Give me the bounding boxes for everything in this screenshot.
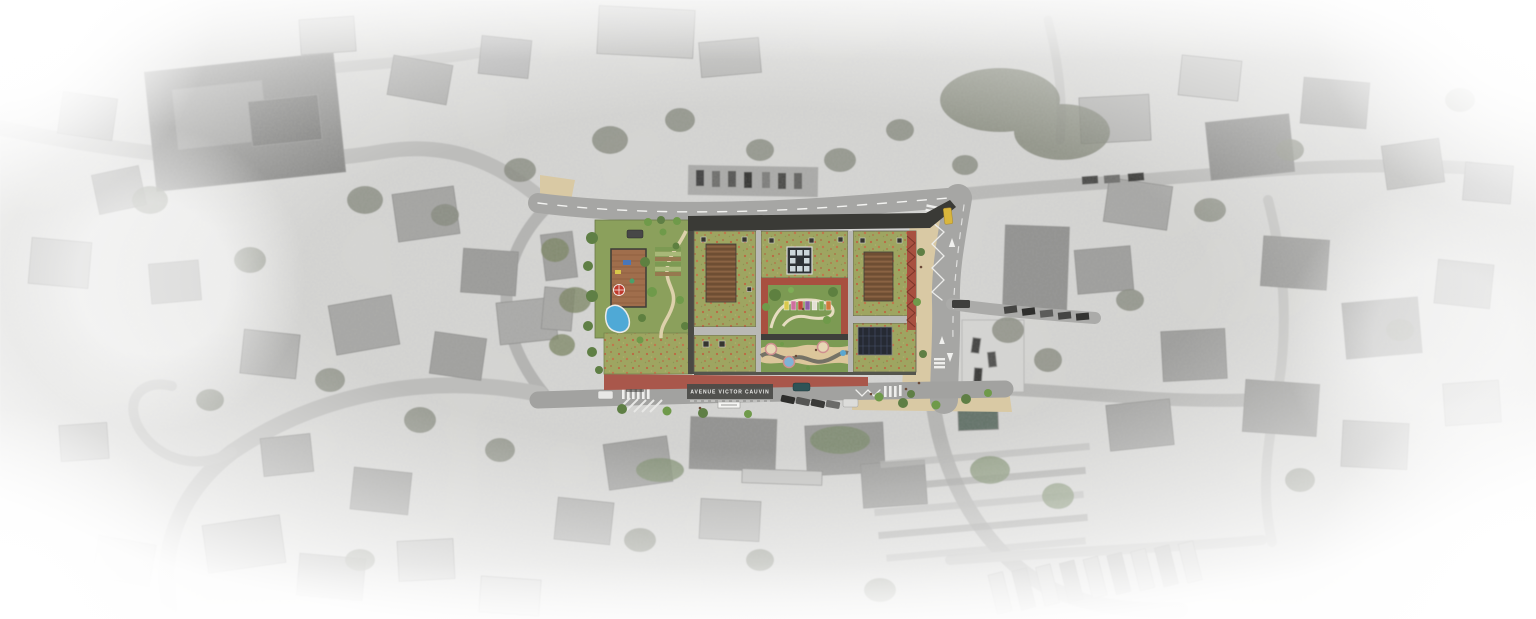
play-equipment xyxy=(615,270,621,274)
playground-courtyard xyxy=(761,340,848,372)
flower-meadow-lawn xyxy=(604,333,692,374)
crosswalk-east-road xyxy=(934,358,945,368)
parasol xyxy=(614,285,625,296)
building-complex xyxy=(688,200,956,375)
street-name-label: AVENUE VICTOR CAUVIN xyxy=(690,390,769,396)
play-circle xyxy=(818,342,829,353)
teal-car xyxy=(793,383,810,391)
dimension-box xyxy=(718,402,740,408)
west-facade-edge xyxy=(688,230,694,374)
skylight-grid xyxy=(787,247,812,274)
aerial-masterplan-render: AVENUE VICTOR CAUVIN xyxy=(0,0,1536,619)
white-car xyxy=(598,391,613,399)
courtyard-garden xyxy=(761,278,848,334)
small-street-label xyxy=(626,389,644,392)
green-roof-southwest xyxy=(694,335,756,372)
solar-panels xyxy=(858,327,892,355)
play-equipment xyxy=(630,279,635,284)
parked-car xyxy=(627,230,643,238)
dark-car xyxy=(952,300,970,308)
flower-beds xyxy=(784,301,831,310)
timber-pergola-east xyxy=(864,252,893,301)
play-equipment xyxy=(623,260,631,265)
east-awnings xyxy=(907,231,916,330)
west-garden xyxy=(595,220,695,374)
south-facade-edge xyxy=(694,372,916,375)
play-circle xyxy=(766,344,777,355)
small-pool-dot xyxy=(840,350,846,356)
white-van xyxy=(843,399,858,407)
courtyard-divider xyxy=(761,334,848,340)
wooden-play-deck xyxy=(611,249,646,307)
splash-circle xyxy=(784,357,795,368)
timber-pergola-west xyxy=(706,244,736,302)
taxi-car xyxy=(943,208,953,225)
